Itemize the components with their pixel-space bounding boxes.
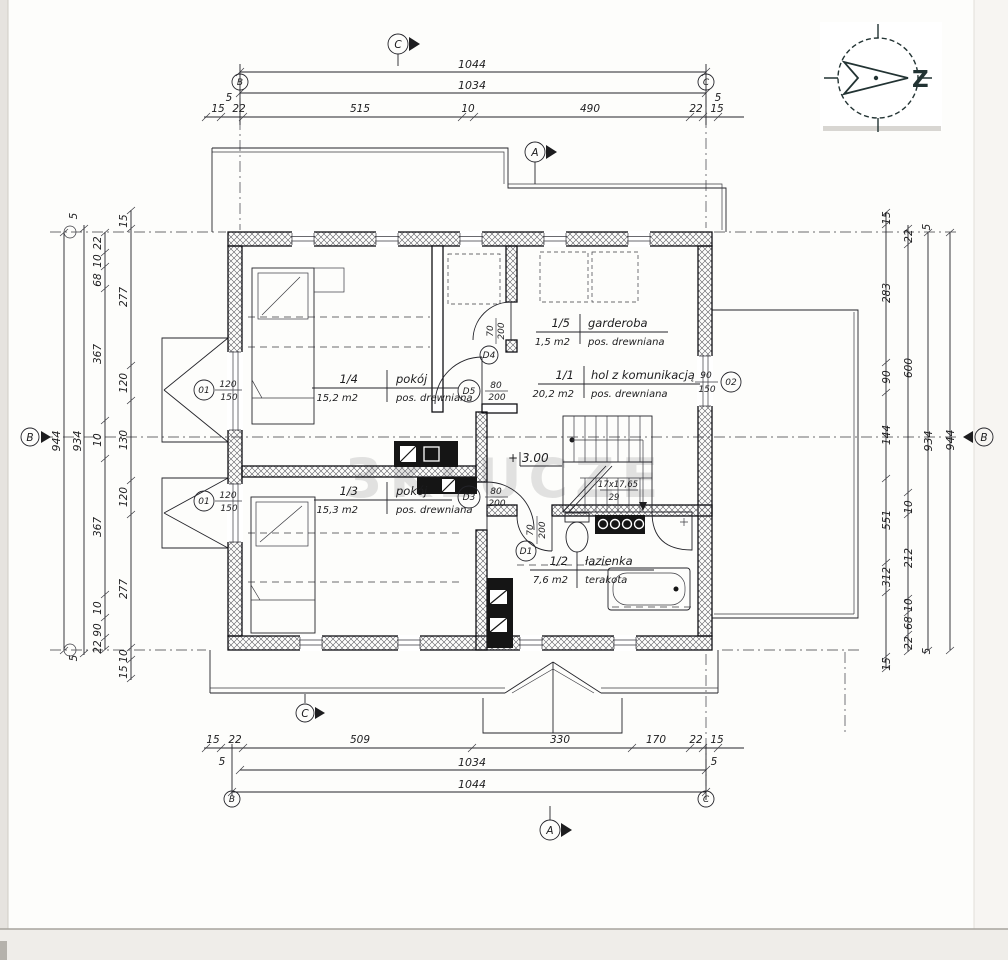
dim-seg: 15 xyxy=(118,214,130,228)
dim-seg: 15 xyxy=(710,103,724,115)
section-label: B xyxy=(26,432,33,444)
dim-seg: 277 xyxy=(118,287,130,307)
door-height: 200 xyxy=(538,521,548,538)
window-top-1 xyxy=(291,231,315,247)
room-floor: pos. drewniana xyxy=(590,389,668,400)
dim-seg: 312 xyxy=(881,567,893,587)
window-left-1 xyxy=(227,351,243,431)
floor-plan-drawing: 3KLUCZE xyxy=(0,0,1008,960)
dim-inner: 934 xyxy=(922,431,935,452)
north-letter: Z xyxy=(912,67,929,93)
room-area: 7,6 m2 xyxy=(533,575,568,586)
dim-seg: 10 xyxy=(92,601,104,615)
dim-seg: 277 xyxy=(118,579,130,599)
door-height: 200 xyxy=(497,322,507,339)
scan-edge-right xyxy=(974,0,1008,929)
dim-seg: 22 xyxy=(92,640,104,654)
room-floor: terakota xyxy=(585,575,627,586)
dim-tick: 5 xyxy=(68,212,80,219)
window-id: 02 xyxy=(725,378,737,388)
window-id: 01 xyxy=(198,386,209,396)
dim-seg: 120 xyxy=(118,487,130,507)
dim-seg: 68 xyxy=(903,616,915,630)
door-width: 80 xyxy=(490,381,502,391)
room-floor: pos. drewniana xyxy=(395,505,473,516)
room-floor: pos. drewniana xyxy=(587,337,665,348)
window-id: 01 xyxy=(198,497,209,507)
radiator xyxy=(595,515,645,534)
dim-seg: 15 xyxy=(710,734,724,746)
dim-seg: 515 xyxy=(350,103,370,115)
window-top-2 xyxy=(375,231,399,247)
section-label: B xyxy=(980,432,987,444)
dim-seg: 10 xyxy=(118,649,130,663)
room-area: 20,2 m2 xyxy=(532,389,574,400)
dim-seg: 15 xyxy=(881,657,893,671)
window-top-4 xyxy=(543,231,567,247)
dim-seg: 10 xyxy=(903,598,915,612)
dim-seg: 130 xyxy=(118,430,130,450)
dim-tick: 5 xyxy=(226,92,233,104)
scan-edge-bottom xyxy=(0,929,1008,960)
dim-seg: 10 xyxy=(92,254,104,268)
section-label: C xyxy=(394,39,402,51)
dim-seg: 22 xyxy=(232,103,246,115)
window-height: 150 xyxy=(220,504,237,514)
dim-seg: 10 xyxy=(92,433,104,447)
window-top-3 xyxy=(459,231,483,247)
dim-seg: 68 xyxy=(92,273,104,287)
dim-tick: 5 xyxy=(68,654,80,661)
door-width: 80 xyxy=(490,487,502,497)
window-bottom-4 xyxy=(613,635,637,651)
window-bottom-1 xyxy=(299,635,323,651)
dim-tick: 5 xyxy=(711,756,718,768)
dim-seg: 22 xyxy=(228,734,242,746)
dim-seg: 90 xyxy=(881,370,893,384)
grid-axis-label: B xyxy=(237,78,243,88)
door-width: 70 xyxy=(486,325,496,337)
room-name: pokój xyxy=(395,372,428,386)
dim-seg: 22 xyxy=(92,236,104,250)
door-id: D1 xyxy=(520,547,533,557)
dim-seg: 212 xyxy=(903,548,915,568)
dim-seg: 22 xyxy=(689,734,703,746)
compass-rose: Z xyxy=(820,22,942,132)
window-right xyxy=(697,355,713,407)
dim-seg: 15 xyxy=(881,211,893,225)
dim-seg: 170 xyxy=(646,734,666,746)
window-width: 120 xyxy=(219,491,236,501)
room-name: pokój xyxy=(395,484,428,498)
room-name: garderoba xyxy=(588,316,648,330)
room-id: 1/5 xyxy=(551,316,570,330)
section-label: A xyxy=(530,147,538,159)
dim-seg: 120 xyxy=(118,373,130,393)
door-height: 200 xyxy=(488,393,505,403)
dim-inner: 1034 xyxy=(458,79,486,92)
dim-total: 1044 xyxy=(458,58,486,71)
door-id: D3 xyxy=(463,493,476,503)
window-height: 150 xyxy=(698,385,715,395)
dim-tick: 5 xyxy=(921,647,933,654)
window-bottom-3 xyxy=(519,635,543,651)
dim-seg: 490 xyxy=(580,103,600,115)
room-area: 1,5 m2 xyxy=(535,337,570,348)
dim-inner: 934 xyxy=(71,431,84,452)
stair-riser-label: 17x17,65 xyxy=(598,480,638,490)
dim-seg: 551 xyxy=(881,510,893,530)
dim-seg: 144 xyxy=(881,425,893,445)
grid-axis-label: C xyxy=(703,795,710,805)
window-bottom-2 xyxy=(397,635,421,651)
room-name: łazienka xyxy=(585,554,633,568)
room-id: 1/3 xyxy=(339,484,358,498)
dim-tick: 5 xyxy=(715,92,722,104)
grid-axis-label: B xyxy=(229,795,235,805)
dim-seg: 90 xyxy=(92,623,104,637)
door-id: D4 xyxy=(483,351,496,361)
dim-seg: 15 xyxy=(211,103,225,115)
window-height: 150 xyxy=(220,393,237,403)
dim-seg: 10 xyxy=(461,103,475,115)
dim-seg: 15 xyxy=(206,734,220,746)
door-width: 70 xyxy=(526,524,536,536)
door-height: 200 xyxy=(488,499,505,509)
dim-seg: 367 xyxy=(92,344,104,364)
dim-seg: 22 xyxy=(903,229,915,243)
scanned-floor-plan-page: 3KLUCZE xyxy=(0,0,1008,960)
grid-axis-label: C xyxy=(703,78,710,88)
stair-tread-label: 29 xyxy=(609,493,620,503)
room-id: 1/2 xyxy=(549,554,568,568)
dim-seg: 22 xyxy=(903,636,915,650)
dim-seg: 15 xyxy=(118,665,130,679)
room-area: 15,3 m2 xyxy=(316,505,358,516)
dim-total: 944 xyxy=(50,431,63,452)
dim-total: 944 xyxy=(944,430,957,451)
section-label: C xyxy=(301,708,309,720)
section-label: A xyxy=(545,825,553,837)
dim-seg: 509 xyxy=(350,734,370,746)
dim-seg: 283 xyxy=(881,283,893,303)
dim-seg: 10 xyxy=(903,500,915,514)
scan-edge-left xyxy=(0,0,8,932)
room-area: 15,2 m2 xyxy=(316,393,358,404)
dim-inner: 1034 xyxy=(458,756,486,769)
dim-tick: 5 xyxy=(921,223,933,230)
window-width: 90 xyxy=(700,371,712,381)
room-id: 1/1 xyxy=(555,368,574,382)
dim-seg: 600 xyxy=(903,358,915,378)
window-width: 120 xyxy=(219,380,236,390)
room-floor: pos. drewniana xyxy=(395,393,473,404)
room-id: 1/4 xyxy=(339,372,358,386)
level-label: + 3.00 xyxy=(508,451,549,465)
dim-seg: 22 xyxy=(689,103,703,115)
dim-seg: 367 xyxy=(92,517,104,537)
room-name: hol z komunikacją xyxy=(591,368,695,382)
window-top-5 xyxy=(627,231,651,247)
dim-seg: 330 xyxy=(550,734,570,746)
dim-total: 1044 xyxy=(458,778,486,791)
dim-tick: 5 xyxy=(219,756,226,768)
